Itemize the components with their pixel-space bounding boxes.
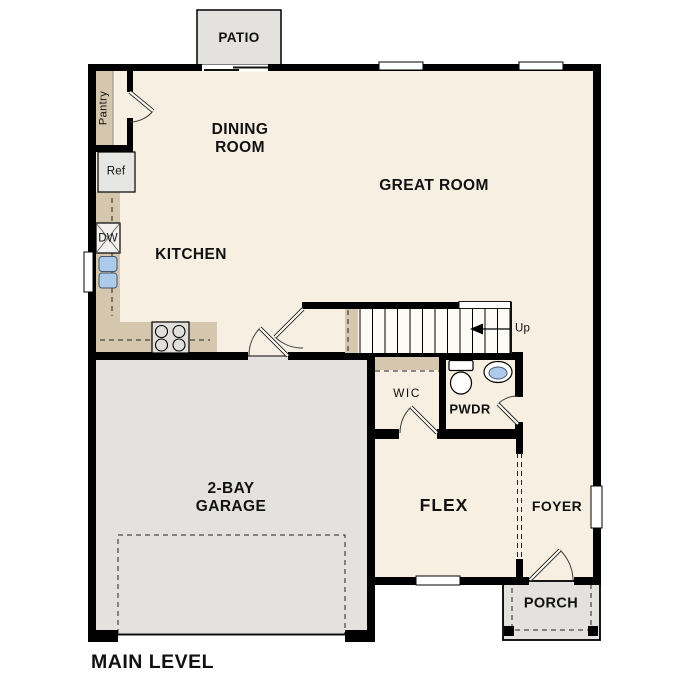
patio-label: PATIO — [218, 30, 259, 46]
foyer-label: FOYER — [532, 498, 582, 514]
garage-door-line — [118, 634, 345, 636]
porch-label: PORCH — [524, 596, 578, 613]
wic-shelf — [375, 357, 439, 371]
stair-side-wall — [345, 309, 358, 353]
garage-label-line2: GARAGE — [196, 498, 266, 516]
window — [84, 252, 93, 292]
pwdr-label: PWDR — [449, 403, 490, 418]
toilet-fixture — [449, 361, 473, 395]
window — [591, 486, 602, 528]
floor-plan: PATIO DINING ROOM GREAT ROOM KITCHEN Pan… — [0, 0, 687, 687]
dining-room-label-line2: ROOM — [212, 139, 269, 157]
window — [519, 62, 563, 70]
garage-label-line1: 2-BAY — [196, 480, 266, 498]
stove-fixture — [152, 322, 189, 353]
sliding-door — [202, 65, 269, 72]
kitchen-label: KITCHEN — [155, 246, 227, 264]
stairs — [345, 302, 512, 355]
porch-post — [504, 626, 514, 636]
refrigerator-label: Ref — [107, 165, 126, 178]
stair-landing — [459, 302, 511, 309]
window — [416, 576, 460, 585]
bathroom-sink-fixture — [484, 362, 512, 383]
stairs-up-label: Up — [515, 322, 530, 335]
garage-label: 2-BAY GARAGE — [196, 480, 266, 516]
pantry-label: Pantry — [98, 91, 111, 125]
porch-post — [588, 626, 598, 636]
dishwasher-label: DW — [98, 232, 118, 245]
dining-room-label-line1: DINING — [212, 121, 269, 139]
great-room-label: GREAT ROOM — [379, 177, 489, 195]
flex-label: FLEX — [420, 495, 469, 515]
wic-label: WIC — [393, 387, 421, 401]
dining-room-label: DINING ROOM — [212, 121, 269, 157]
window — [379, 62, 423, 70]
level-title: MAIN LEVEL — [91, 651, 214, 673]
